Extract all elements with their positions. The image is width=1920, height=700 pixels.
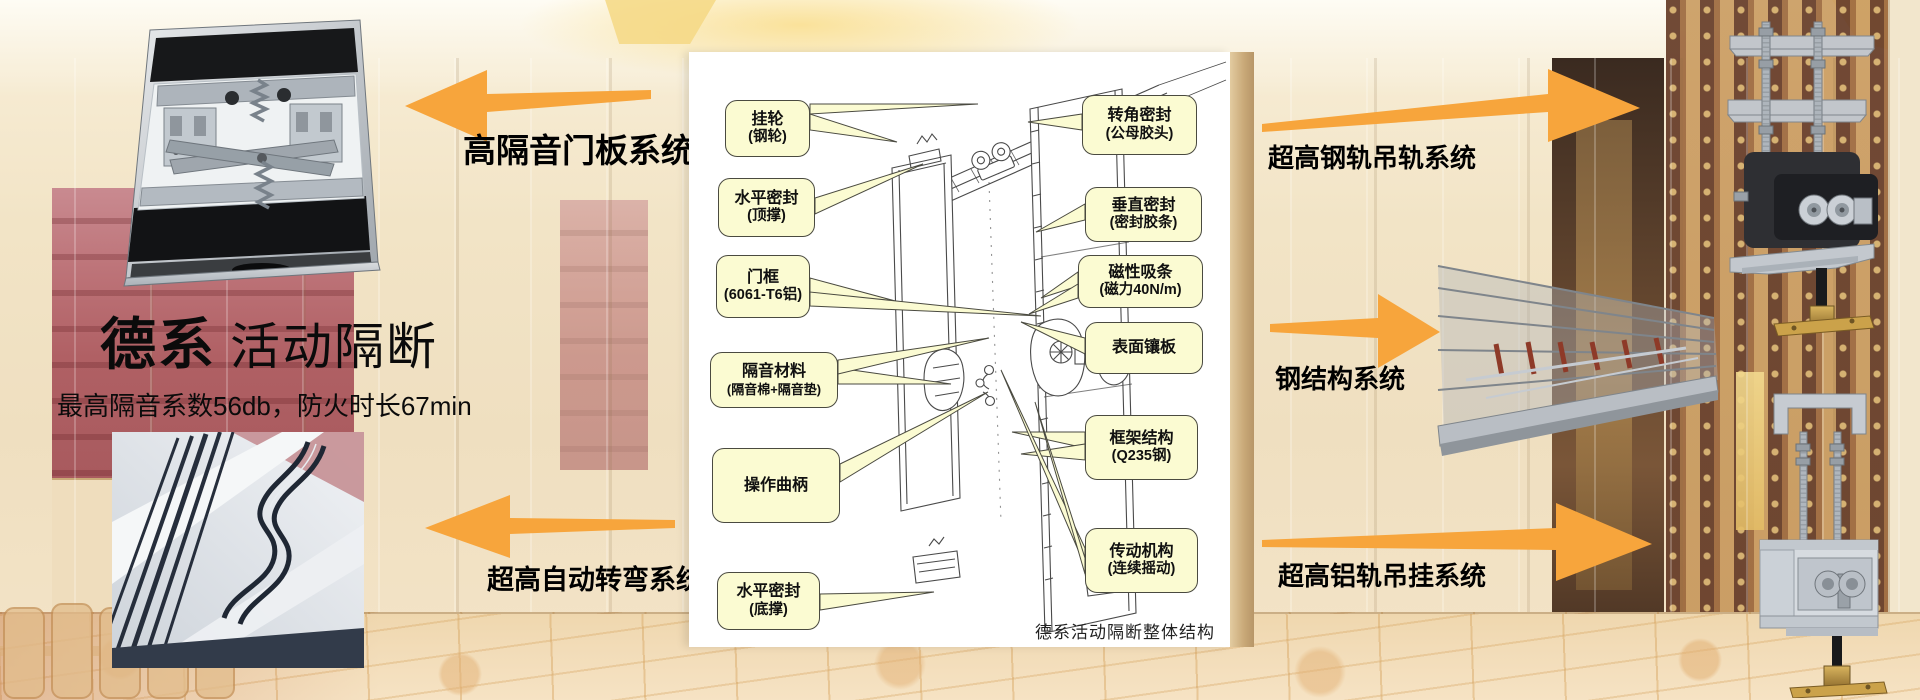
callout-sound-insulation: 隔音材料 (隔音棉+隔音垫) (710, 352, 838, 408)
callout-operating-crank: 操作曲柄 (712, 448, 840, 523)
callout-frame-structure: 框架结构 (Q235钢) (1085, 415, 1198, 480)
callout-horizontal-seal-bottom: 水平密封 (底撑) (717, 572, 820, 630)
callout-text: 磁性吸条 (1108, 263, 1172, 283)
slide-canvas: 德系活动隔断 最高隔音系数56db，防火时长67min 高隔音门板系统 超高自动… (0, 0, 1920, 700)
callout-surface-panel: 表面镶板 (1085, 322, 1203, 374)
callout-text: 垂直密封 (1111, 196, 1175, 216)
callout-text: 操作曲柄 (744, 476, 808, 496)
arrow-steel-rail-icon (1262, 66, 1640, 144)
callout-text: 水平密封 (734, 189, 798, 209)
curve-track-photo (112, 432, 364, 668)
title-secondary: 活动隔断 (230, 319, 438, 375)
product-title: 德系活动隔断 (100, 300, 438, 381)
callout-text: (密封胶条) (1110, 215, 1178, 233)
label-alu-rail-system: 超高铝轨吊挂系统 (1278, 556, 1486, 593)
callout-transmission: 传动机构 (连续摇动) (1085, 528, 1198, 593)
callout-text: 门框 (747, 268, 779, 288)
callout-horizontal-seal-top: 水平密封 (顶撑) (718, 178, 815, 237)
steel-structure-photo (1436, 230, 1720, 464)
callout-text: (钢轮) (748, 129, 787, 147)
steel-rail-photo (1718, 6, 1886, 336)
callout-text: 水平密封 (736, 582, 800, 602)
label-steel-structure-system: 钢结构系统 (1275, 359, 1405, 396)
callout-door-frame: 门框 (6061-T6铝) (716, 255, 810, 318)
diagram-caption: 德系活动隔断整体结构 (1035, 618, 1215, 643)
callout-text: (Q235钢) (1112, 448, 1172, 466)
arrow-steel-structure-icon (1270, 290, 1440, 370)
callout-text: 框架结构 (1109, 429, 1173, 449)
label-door-panel-system: 高隔音门板系统 (463, 124, 694, 172)
callout-text: (公母胶头) (1106, 126, 1174, 144)
callout-vertical-seal: 垂直密封 (密封胶条) (1085, 187, 1202, 242)
callout-magnetic-strip: 磁性吸条 (磁力40N/m) (1078, 255, 1203, 308)
door-panel-photo (112, 12, 392, 302)
label-auto-turn-system: 超高自动转弯系统 (487, 558, 703, 597)
title-primary: 德系 (100, 313, 216, 376)
callout-text: 转角密封 (1107, 106, 1171, 126)
alu-rail-photo (1746, 382, 1892, 698)
callout-text: (连续摇动) (1108, 561, 1176, 579)
callout-text: 表面镶板 (1112, 338, 1176, 358)
callout-text: 挂轮 (751, 110, 783, 130)
callout-text: (6061-T6铝) (724, 287, 802, 305)
callout-text: 传动机构 (1109, 542, 1173, 562)
label-steel-rail-system: 超高钢轨吊轨系统 (1268, 138, 1476, 175)
product-subtitle: 最高隔音系数56db，防火时长67min (57, 386, 472, 423)
callout-text: (隔音棉+隔音垫) (727, 382, 821, 398)
arrow-auto-turn-icon (425, 492, 675, 560)
callout-hanging-wheel: 挂轮 (钢轮) (725, 100, 810, 157)
panel-edge-gold-band (1230, 52, 1254, 647)
callout-text: (磁力40N/m) (1099, 282, 1181, 300)
callout-text: 隔音材料 (742, 362, 806, 382)
callout-text: (底撑) (749, 602, 788, 620)
callout-corner-seal: 转角密封 (公母胶头) (1082, 95, 1197, 155)
structure-diagram-panel: 挂轮 (钢轮) 水平密封 (顶撑) 门框 (6061-T6铝) 隔音材料 (隔音… (689, 52, 1230, 647)
callout-text: (顶撑) (747, 208, 786, 226)
